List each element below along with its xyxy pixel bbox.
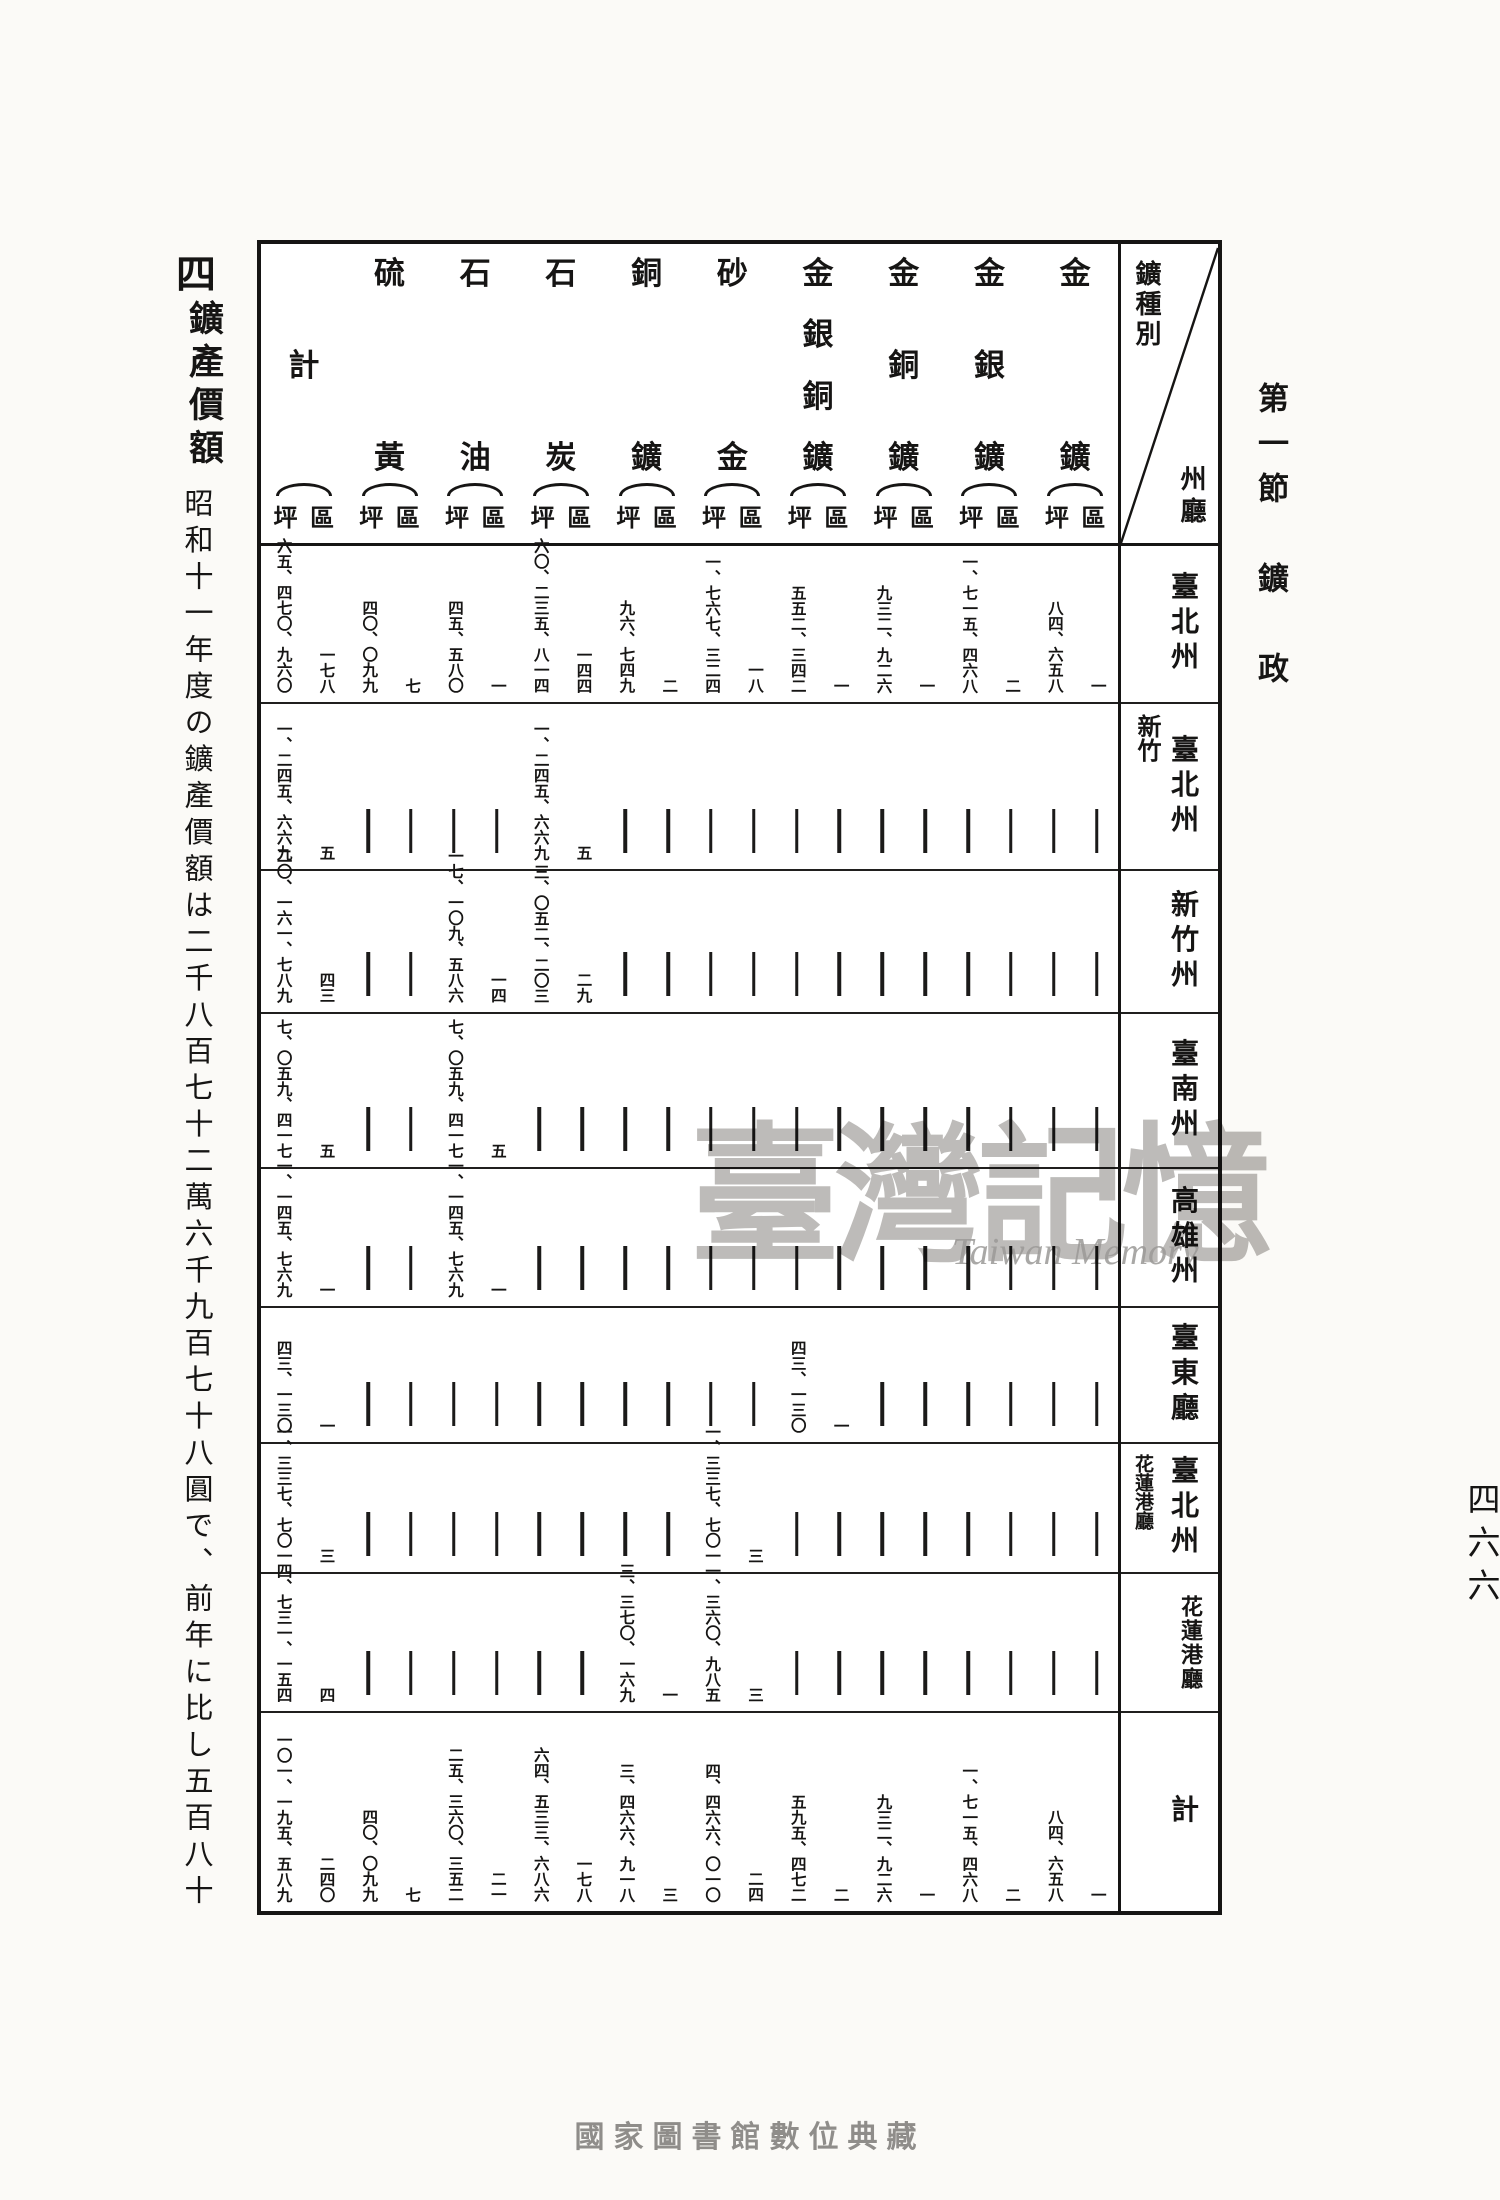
dash-placeholder [881,1107,885,1151]
cell-kin [1032,1444,1118,1572]
sub-ku [989,1169,1032,1306]
sub-tsubo [861,871,904,1012]
sub-tsubo [347,871,390,1012]
sub-tsubo: 五五二、三四二 [775,546,818,702]
cell-kingindo [775,1444,861,1572]
dash-placeholder [795,1107,799,1151]
dash-placeholder [966,952,970,996]
sub-tsubo [689,871,732,1012]
value-text: 七 [404,1887,418,1903]
cell-kin [1032,1574,1118,1711]
sub-ku: 七 [390,1713,433,1911]
cell-kei: 一七八六五、四七〇、九六〇 [261,546,347,702]
unit-ku: 區 [910,498,934,533]
sub-ku [647,704,690,869]
column-name-char: 鑛 [1060,442,1091,473]
cell-io [347,1574,433,1711]
cell-sakin: 三一、三六〇、九八五 [689,1574,775,1711]
sub-ku: 二四〇 [304,1713,347,1911]
column-name-char: 鑛 [974,442,1005,473]
sub-tsubo [1032,1574,1075,1711]
cell-kindo [861,704,947,869]
value-text: 四〇、〇九九 [361,1809,375,1902]
sub-tsubo: 一、七六七、三二四 [689,546,732,702]
sub-ku [818,1014,861,1167]
value-text: 二〇、一六一、七八九 [275,848,289,1003]
dash-placeholder [752,1107,756,1151]
sub-tsubo [861,1169,904,1306]
dash-placeholder [966,809,970,853]
sub-tsubo: 九六、七四九 [604,546,647,702]
sub-ku [989,1574,1032,1711]
sub-ku: 一 [304,1308,347,1442]
sub-tsubo [1032,1308,1075,1442]
sub-tsubo [604,1169,647,1306]
sub-ku [647,1169,690,1306]
sub-tsubo [604,1444,647,1572]
column-name-char: 砂 [717,258,748,289]
sub-ku [390,1169,433,1306]
dash-placeholder [666,1512,670,1556]
sub-ku [475,1308,518,1442]
sub-tsubo: 九三二、九二六 [861,546,904,702]
sub-tsubo [518,1169,561,1306]
dash-placeholder [1009,952,1013,996]
unit-tsubo: 坪 [274,498,298,533]
corner-label-prefecture: 州廳 [1173,465,1210,529]
cell-kingin [947,1308,1033,1442]
cell-sakin: 二四四、四六六、〇一〇 [689,1713,775,1911]
value-text: 七 [404,678,418,694]
dash-placeholder [409,952,413,996]
cell-io [347,1169,433,1306]
value-text: 八四、六五八 [1047,1809,1061,1902]
sub-tsubo [947,1169,990,1306]
sub-ku [904,871,947,1012]
cell-kei: 五七、〇五九、四一七 [261,1014,347,1167]
value-text: 一、二四五、六六九 [275,721,289,861]
brace-icon [961,483,1017,496]
sub-tsubo: 四〇、〇九九 [347,546,390,702]
brace-icon [276,483,332,496]
sub-tsubo: 一、一四五、七六九 [261,1169,304,1306]
dash-placeholder [1095,952,1099,996]
column-name-char: 銅 [803,381,834,412]
cell-kin: 一八四、六五八 [1032,1713,1118,1911]
table-row: 三一、三三七、七〇一三一、三三七、七〇一 [261,1444,1118,1574]
row-label: 臺北州新竹 [1121,704,1218,871]
value-text: 五五二、三四二 [789,585,803,694]
sub-ku: 二 [989,546,1032,702]
cell-sekitan [518,1308,604,1442]
sub-ku [1075,1444,1118,1572]
cell-sekiyu [432,1308,518,1442]
dash-placeholder [538,1107,542,1151]
unit-ku: 區 [653,498,677,533]
sub-tsubo [518,1444,561,1572]
value-text: 一 [661,1687,675,1703]
row-label: 新竹州 [1121,871,1218,1014]
sub-tsubo: 一七、一〇九、五八六 [432,871,475,1012]
cell-do [604,871,690,1012]
cell-sakin [689,871,775,1012]
sub-ku: 一四 [475,871,518,1012]
value-text: 五九五、四七二 [789,1794,803,1903]
sub-tsubo [1032,1014,1075,1167]
column-name-char: 金 [803,258,834,289]
brace-icon [533,483,589,496]
sub-tsubo [604,1308,647,1442]
sub-tsubo: 三、〇五二、二〇三 [518,871,561,1012]
dash-placeholder [1052,1382,1056,1426]
cell-kingindo: 一五五二、三四二 [775,546,861,702]
dash-placeholder [881,952,885,996]
cell-sekiyu [432,704,518,869]
cell-kindo [861,1014,947,1167]
sub-tsubo: 一、三三七、七〇一 [689,1444,732,1572]
sub-ku [904,1014,947,1167]
dash-placeholder [452,1651,456,1695]
dash-placeholder [1095,1382,1099,1426]
sub-tsubo: 一、七一五、四六八 [947,546,990,702]
dash-placeholder [752,1382,756,1426]
brace-icon [362,483,418,496]
dash-placeholder [709,1107,713,1151]
sub-ku: 五 [475,1014,518,1167]
value-text: 一、七一五、四六八 [961,1763,975,1903]
dash-placeholder [581,1246,585,1290]
dash-placeholder [409,1651,413,1695]
value-text: 六五、四七〇、九六〇 [275,538,289,693]
sub-ku [989,1308,1032,1442]
cell-io [347,1014,433,1167]
cell-kingin [947,1169,1033,1306]
dash-placeholder [409,1107,413,1151]
cell-kingin [947,1574,1033,1711]
sub-tsubo [775,1444,818,1572]
cell-do: 三三、四六六、九一八 [604,1713,690,1911]
table-row: 一八四、六五八二一、七一五、四六八一九三二、九二六一五五二、三四二一八一、七六七… [261,546,1118,704]
sub-ku [818,1169,861,1306]
table-row: 三一、三六〇、九八五一三、三七〇、一六九四四、七三一、一五四 [261,1574,1118,1713]
table-row: 一一、一四五、七六九一一、一四五、七六九 [261,1169,1118,1308]
cell-kin [1032,1169,1118,1306]
dash-placeholder [1052,1512,1056,1556]
table-data-area: 金鑛區坪金銀鑛區坪金銅鑛區坪金銀銅鑛區坪砂金區坪銅鑛區坪石炭區坪石油區坪硫黃區坪… [261,244,1118,1911]
cell-kindo: 一九三二、九二六 [861,546,947,702]
dash-placeholder [838,952,842,996]
sub-ku: 一 [904,546,947,702]
value-text: 二四 [747,1871,761,1902]
cell-sekitan: 五一、二四五、六六九 [518,704,604,869]
cell-kingindo [775,704,861,869]
sub-ku [561,1574,604,1711]
unit-ku: 區 [482,498,506,533]
margin-section-number: 四 [176,242,216,300]
cell-io [347,704,433,869]
dash-placeholder [1095,1512,1099,1556]
dash-placeholder [795,1651,799,1695]
cell-kingindo [775,1014,861,1167]
value-text: 一八 [747,662,761,693]
value-text: 一、七一五、四六八 [961,554,975,694]
unit-ku: 區 [396,498,420,533]
row-label-text: 臺北州 [1162,734,1202,839]
value-text: 四、四六六、〇一〇 [704,1763,718,1903]
cell-sekiyu: 五七、〇五九、四一七 [432,1014,518,1167]
unit-ku: 區 [996,498,1020,533]
value-text: 四三、一三〇 [275,1340,289,1433]
sub-ku [732,1169,775,1306]
cell-kei: 一一、一四五、七六九 [261,1169,347,1306]
sub-ku: 三 [647,1713,690,1911]
row-label-column: 鑛種別州廳臺北州臺北州新竹新竹州臺南州高雄州臺東廳臺北州花蓮港廳花蓮港廳計 [1118,244,1218,1911]
sub-tsubo [861,704,904,869]
cell-kingindo: 二五九五、四七二 [775,1713,861,1911]
sub-tsubo: 一、三三七、七〇一 [261,1444,304,1572]
cell-kei: 五一、二四五、六六九 [261,704,347,869]
sub-ku: 一四四 [561,546,604,702]
value-text: 四三 [318,972,332,1003]
value-text: 九三二、九二六 [875,585,889,694]
sub-ku [732,704,775,869]
cell-io [347,871,433,1012]
dash-placeholder [366,1107,370,1151]
sub-tsubo: 四三、一三〇 [775,1308,818,1442]
value-text: 九六、七四九 [618,600,632,693]
dash-placeholder [838,1512,842,1556]
cell-kindo: 一九三二、九二六 [861,1713,947,1911]
cell-sekiyu: 一一、一四五、七六九 [432,1169,518,1306]
cell-kindo [861,871,947,1012]
value-text: 一 [918,1887,932,1903]
value-text: 二 [1004,1887,1018,1903]
cell-kingin: 二一、七一五、四六八 [947,546,1033,702]
dash-placeholder [923,1107,927,1151]
sub-tsubo [347,1014,390,1167]
dash-placeholder [538,1246,542,1290]
value-text: 四三、一三〇 [789,1340,803,1433]
unit-ku: 區 [824,498,848,533]
dash-placeholder [581,1512,585,1556]
unit-ku: 區 [567,498,591,533]
sub-tsubo [518,1308,561,1442]
unit-tsubo: 坪 [788,498,812,533]
cell-sakin [689,1308,775,1442]
dash-placeholder [366,1512,370,1556]
value-text: 八四、六五八 [1047,600,1061,693]
sub-ku: 五 [304,1014,347,1167]
column-header-sakin: 砂金區坪 [689,244,775,543]
dash-placeholder [838,1246,842,1290]
cell-kingin [947,871,1033,1012]
sub-tsubo [947,871,990,1012]
dash-placeholder [838,809,842,853]
sub-tsubo [861,1574,904,1711]
dash-placeholder [409,1512,413,1556]
sub-tsubo [432,1308,475,1442]
sub-tsubo [604,1014,647,1167]
column-header-kingin: 金銀鑛區坪 [947,244,1033,543]
value-text: 一 [489,1282,503,1298]
dash-placeholder [795,809,799,853]
sub-tsubo: 三、四六六、九一八 [604,1713,647,1911]
brace-icon [1047,483,1103,496]
cell-io [347,1308,433,1442]
margin-body-text: 昭和十一年度の鑛產價額は二千八百七十二萬六千九百七十八圓で、前年に比し五百八十 [181,488,210,1912]
sub-ku [647,1014,690,1167]
dash-placeholder [623,1512,627,1556]
mining-statistics-table: 金鑛區坪金銀鑛區坪金銅鑛區坪金銀銅鑛區坪砂金區坪銅鑛區坪石炭區坪石油區坪硫黃區坪… [257,240,1222,1915]
sub-tsubo [775,1014,818,1167]
corner-header-cell: 鑛種別州廳 [1121,244,1218,546]
brace-icon [790,483,846,496]
cell-do [604,1014,690,1167]
sub-ku [1075,1308,1118,1442]
value-text: 二九 [575,972,589,1003]
sub-ku [989,871,1032,1012]
cell-do: 二九六、七四九 [604,546,690,702]
sub-ku: 一八 [732,546,775,702]
cell-kin: 一八四、六五八 [1032,546,1118,702]
sub-ku [818,871,861,1012]
sub-ku [989,1444,1032,1572]
value-text: 七、〇五九、四一七 [275,1019,289,1159]
sub-tsubo: 二五、三六〇、三五二 [432,1713,475,1911]
dash-placeholder [795,1512,799,1556]
unit-ku: 區 [739,498,763,533]
sub-ku [561,1169,604,1306]
column-name-char: 鑛 [803,442,834,473]
sub-tsubo: 二〇、一六一、七八九 [261,871,304,1012]
dash-placeholder [623,1246,627,1290]
dash-placeholder [838,1107,842,1151]
sub-ku [561,1308,604,1442]
value-text: 一、二四五、六六九 [532,721,546,861]
sub-tsubo [947,1308,990,1442]
value-text: 四〇、〇九九 [361,600,375,693]
sub-ku: 三 [732,1574,775,1711]
sub-ku: 二九 [561,871,604,1012]
sub-tsubo: 一、二四五、六六九 [261,704,304,869]
sub-ku: 一七八 [561,1713,604,1911]
sub-ku [904,1444,947,1572]
sub-tsubo: 四五、五八〇 [432,546,475,702]
sub-ku [390,1444,433,1572]
cell-sekitan: 二九三、〇五二、二〇三 [518,871,604,1012]
value-text: 五 [575,845,589,861]
sub-ku: 二 [989,1713,1032,1911]
dash-placeholder [752,952,756,996]
unit-tsubo: 坪 [616,498,640,533]
cell-io: 七四〇、〇九九 [347,546,433,702]
value-text: 一四 [489,972,503,1003]
cell-sekitan [518,1169,604,1306]
sub-ku [561,1444,604,1572]
sub-tsubo [689,1014,732,1167]
cell-sekiyu [432,1444,518,1572]
sub-ku [390,704,433,869]
column-header-sekiyu: 石油區坪 [432,244,518,543]
dash-placeholder [966,1651,970,1695]
sub-ku: 三 [732,1444,775,1572]
value-text: 五 [318,845,332,861]
sub-ku [647,1444,690,1572]
unit-tsubo: 坪 [531,498,555,533]
unit-tsubo: 坪 [359,498,383,533]
value-text: 九三二、九二六 [875,1794,889,1903]
sub-ku [904,1169,947,1306]
row-label-text: 臺南州 [1162,1038,1202,1143]
margin-heading: 鑛產價額 [178,300,229,472]
dash-placeholder [1095,1651,1099,1695]
column-name-char: 黃 [374,442,405,473]
value-text: 一 [918,678,932,694]
value-text: 三、三七〇、一六九 [618,1563,632,1703]
table-row: 五七、〇五九、四一七五七、〇五九、四一七 [261,1014,1118,1169]
dash-placeholder [366,952,370,996]
dash-placeholder [1009,1382,1013,1426]
sub-tsubo [604,704,647,869]
sub-ku: 一 [818,1308,861,1442]
dash-placeholder [623,809,627,853]
row-label-text: 臺北州 [1162,572,1202,677]
cell-kin [1032,871,1118,1012]
sub-tsubo [775,704,818,869]
cell-sekitan: 一七八六四、五三三、六八六 [518,1713,604,1911]
cell-kin [1032,1308,1118,1442]
table-row: 一四三、一三〇一四三、一三〇 [261,1308,1118,1444]
dash-placeholder [581,1107,585,1151]
column-name-char: 計 [288,350,319,381]
sub-tsubo [432,704,475,869]
unit-tsubo: 坪 [445,498,469,533]
dash-placeholder [1095,809,1099,853]
dash-placeholder [923,952,927,996]
dash-placeholder [838,1651,842,1695]
column-header-kingindo: 金銀銅鑛區坪 [775,244,861,543]
unit-tsubo: 坪 [959,498,983,533]
sub-tsubo: 一、三六〇、九八五 [689,1574,732,1711]
value-text: 一 [489,678,503,694]
dash-placeholder [923,1651,927,1695]
column-name-char: 金 [974,258,1005,289]
column-header-do: 銅鑛區坪 [604,244,690,543]
value-text: 一四四 [575,647,589,694]
sub-tsubo [1032,704,1075,869]
sub-tsubo: 八四、六五八 [1032,546,1075,702]
dash-placeholder [366,1382,370,1426]
row-label-text: 花蓮港廳 [1174,1595,1206,1691]
sub-ku: 二四 [732,1713,775,1911]
corner-label-mine-type: 鑛種別 [1128,260,1165,350]
cell-sekiyu: 一四一七、一〇九、五八六 [432,871,518,1012]
sub-ku: 一 [1075,1713,1118,1911]
value-text: 四五、五八〇 [447,600,461,693]
value-text: 一 [832,678,846,694]
cell-sekitan [518,1444,604,1572]
value-text: 二五、三六〇、三五二 [447,1747,461,1902]
row-label: 高雄州 [1121,1169,1218,1308]
value-text: 一、三三七、七〇一 [704,1424,718,1564]
sub-ku [390,1574,433,1711]
row-label: 計 [1121,1713,1218,1911]
sub-ku [647,871,690,1012]
value-text: 一七八 [318,647,332,694]
column-name-char: 金 [1060,258,1091,289]
sub-tsubo [861,1014,904,1167]
dash-placeholder [1095,1246,1099,1290]
